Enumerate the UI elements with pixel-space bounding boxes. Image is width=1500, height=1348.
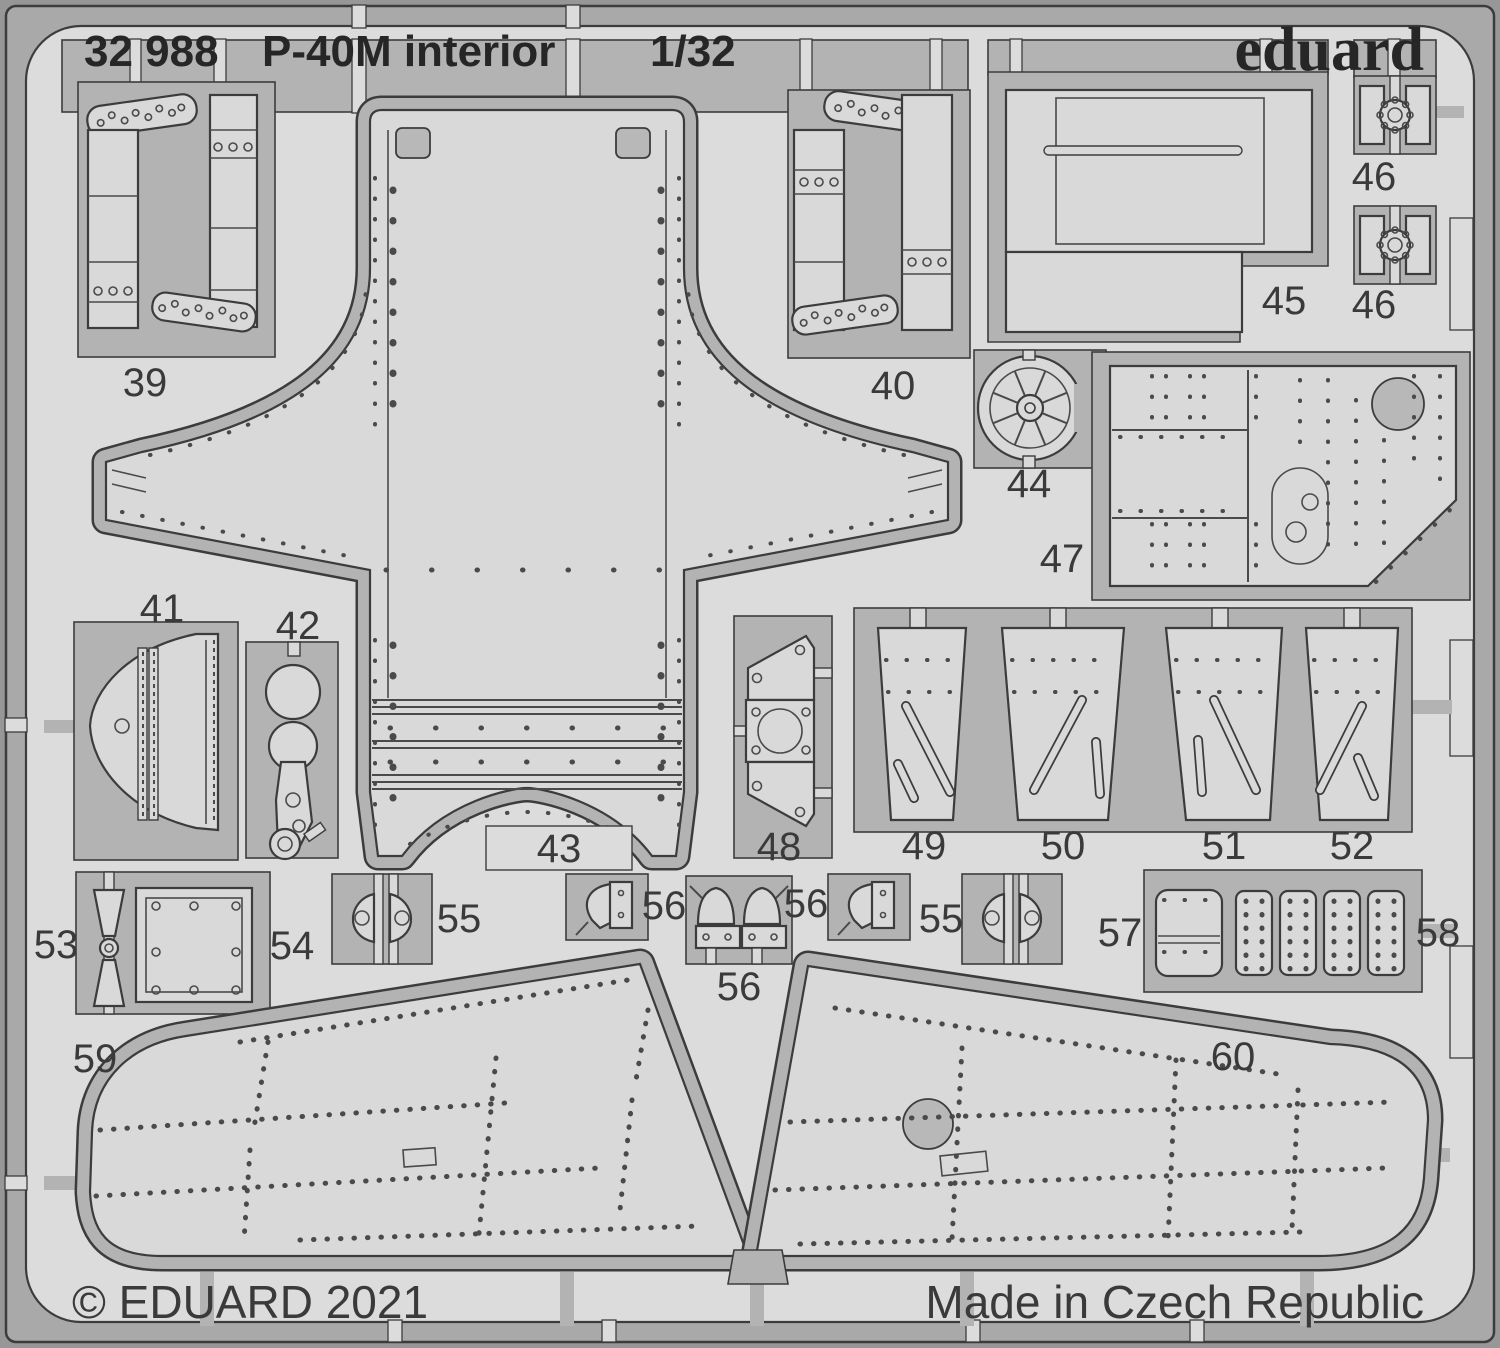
part-42-control-lever	[246, 642, 338, 859]
part-number-60: 60	[1211, 1035, 1256, 1079]
part-number-41: 41	[140, 587, 185, 631]
part-number-47: 47	[1040, 537, 1085, 581]
part-number-50: 50	[1041, 824, 1086, 868]
copyright: © EDUARD 2021	[72, 1276, 428, 1328]
part-number-42: 42	[276, 604, 321, 648]
scale: 1/32	[650, 27, 736, 76]
part-47-riveted-panel	[1092, 352, 1470, 600]
part-number-49: 49	[902, 824, 947, 868]
wing-hole	[903, 1099, 953, 1149]
cutout-square-right	[616, 128, 650, 158]
part-number-55b: 55	[919, 897, 964, 941]
part-number-44: 44	[1007, 462, 1052, 506]
part-number-45: 45	[1262, 279, 1307, 323]
part-number-56b: 56	[717, 965, 762, 1009]
part-58-strip	[1368, 891, 1404, 975]
part-number-55a: 55	[437, 897, 482, 941]
part-55a-hinge	[332, 874, 432, 964]
part-57	[1156, 890, 1222, 976]
fret-drawing: 39 40 41 42 43 44 45 46 46 47 48 49 50 5…	[0, 0, 1500, 1348]
part-55b-hinge	[962, 874, 1062, 964]
large-hole	[1372, 378, 1424, 430]
part-number-46b: 46	[1352, 283, 1397, 327]
part-number-57: 57	[1098, 911, 1143, 955]
part-number-39: 39	[123, 361, 168, 405]
part-56b-double	[686, 876, 792, 964]
part-46b-rosette	[1354, 206, 1436, 284]
part-number-51: 51	[1202, 824, 1247, 868]
part-number-58: 58	[1416, 911, 1461, 955]
part-number-53: 53	[34, 923, 79, 967]
parts-53-54	[76, 872, 270, 1014]
part-number-40: 40	[871, 364, 916, 408]
catalog-number: 32 988	[84, 27, 219, 76]
part-number-46a: 46	[1352, 155, 1397, 199]
part-58-strip	[1324, 891, 1360, 975]
part-44-fan-wheel	[974, 350, 1108, 468]
part-number-56c: 56	[784, 882, 829, 926]
part-48-bracket	[734, 616, 832, 858]
part-number-56a: 56	[642, 884, 687, 928]
sprue-foot	[728, 1250, 788, 1284]
part-46a-rosette	[1354, 76, 1436, 154]
parts-57-58	[1144, 870, 1422, 992]
part-39-frames	[78, 82, 275, 357]
product-name: P-40M interior	[262, 27, 555, 76]
part-54	[136, 888, 252, 1002]
made-in: Made in Czech Republic	[925, 1276, 1424, 1328]
cutout-square-left	[396, 128, 430, 158]
part-number-43: 43	[537, 827, 582, 871]
parts-49-52-side-panels	[854, 608, 1412, 832]
part-56c	[828, 874, 910, 940]
part-number-48: 48	[757, 825, 802, 869]
part-58-strip	[1280, 891, 1316, 975]
part-40-frames	[788, 89, 970, 358]
part-58-strip	[1236, 891, 1272, 975]
brand-logo: eduard	[1235, 16, 1424, 84]
part-number-52: 52	[1330, 824, 1375, 868]
part-41-armor-plate	[74, 622, 238, 860]
part-number-54: 54	[270, 924, 315, 968]
part-number-59: 59	[73, 1037, 118, 1081]
part-56a	[566, 874, 648, 940]
part-50	[1002, 628, 1124, 820]
photoetch-sheet-diagram: 39 40 41 42 43 44 45 46 46 47 48 49 50 5…	[0, 0, 1500, 1348]
